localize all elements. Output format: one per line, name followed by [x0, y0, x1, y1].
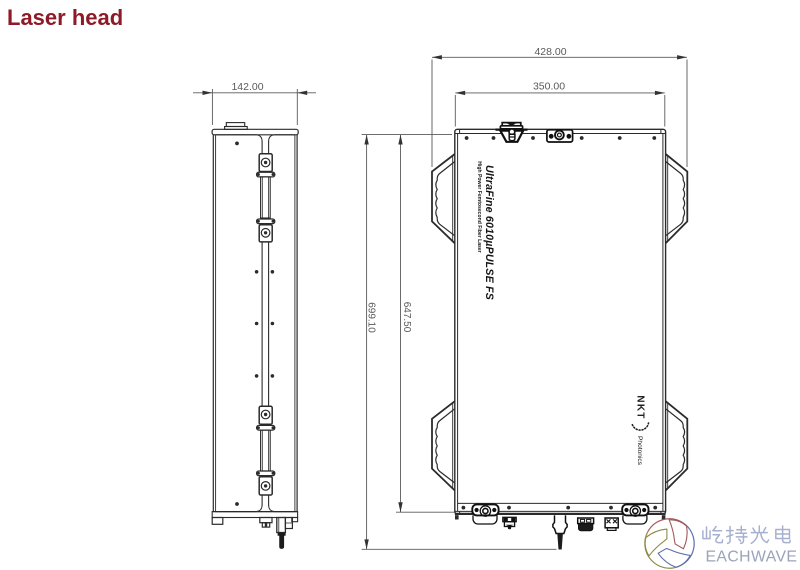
- svg-text:EACHWAVE: EACHWAVE: [706, 549, 798, 566]
- svg-text:142.00: 142.00: [231, 81, 263, 93]
- svg-text:428.00: 428.00: [534, 46, 566, 58]
- svg-text:High Power Femtosecond Fiber L: High Power Femtosecond Fiber Laser: [476, 161, 482, 252]
- svg-text:699.10: 699.10: [366, 302, 377, 333]
- svg-text:NKT: NKT: [635, 395, 646, 419]
- svg-text:647.50: 647.50: [401, 302, 412, 333]
- svg-text:Photonics: Photonics: [636, 436, 643, 466]
- svg-text:Laser head: Laser head: [7, 5, 123, 30]
- svg-text:UltraFine 6010µPULSE FS: UltraFine 6010µPULSE FS: [483, 165, 495, 300]
- svg-text:350.00: 350.00: [533, 81, 565, 93]
